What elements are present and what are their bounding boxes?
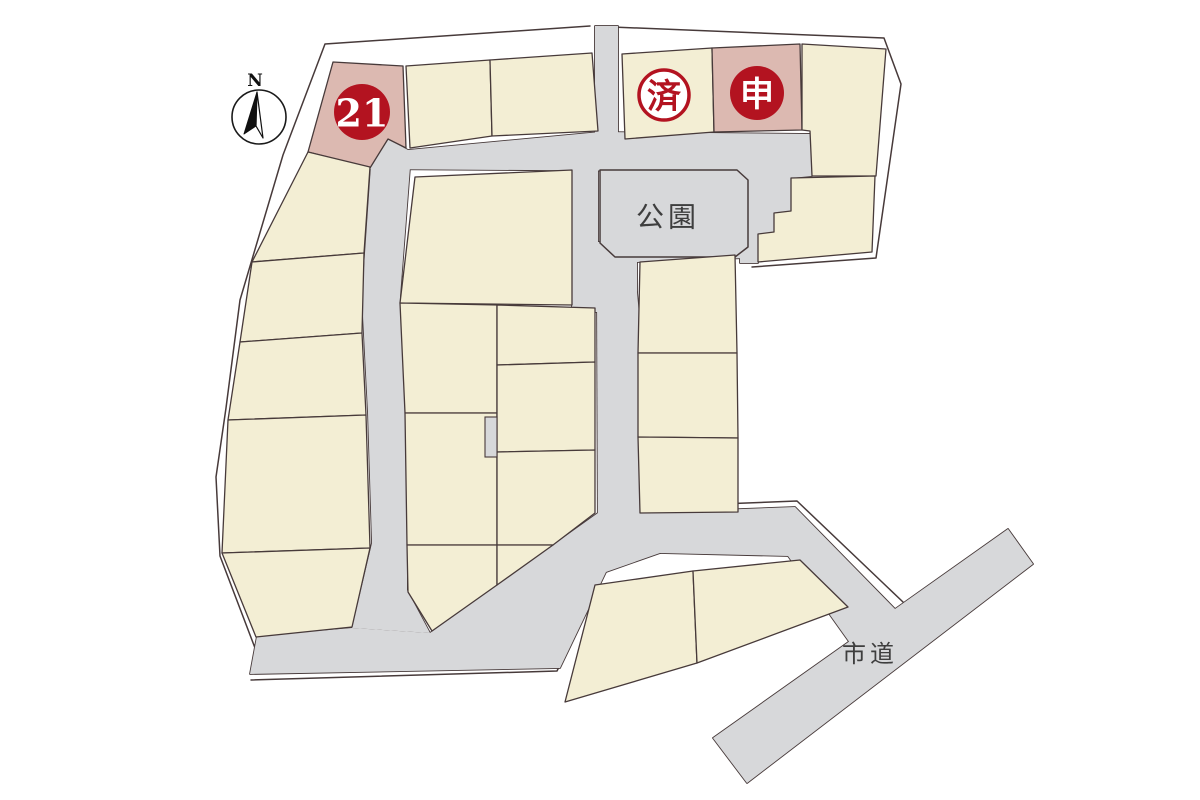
sold-marker[interactable]: 済 <box>639 70 689 120</box>
sold-text: 済 <box>647 77 682 117</box>
lot-parcel <box>802 44 886 176</box>
lot-parcel <box>252 152 370 262</box>
lot-parcel <box>497 362 595 452</box>
lot-parcel <box>228 333 366 420</box>
compass-needle-dark <box>244 92 257 134</box>
lot-parcel <box>406 60 492 148</box>
lot-number-text: 21 <box>336 91 389 136</box>
applied-text: 申 <box>740 75 774 115</box>
lot-parcel <box>222 415 370 553</box>
lot-parcel <box>240 253 364 342</box>
lot-parcel <box>490 53 598 136</box>
lot-parcel <box>497 305 595 365</box>
city-road-label: 市道 <box>842 640 898 668</box>
lot-parcel <box>400 303 497 413</box>
compass-needle-light <box>256 92 263 138</box>
lot-parcel <box>400 170 572 305</box>
lot-21-marker[interactable]: 21 <box>334 84 390 140</box>
lot-parcel <box>405 413 497 545</box>
compass: N <box>232 71 286 144</box>
park-label: 公園 <box>636 201 700 234</box>
subdivision-map-page: 21 済 申 公園 市道 N <box>0 0 1200 800</box>
driveway-sliver <box>485 417 497 457</box>
applied-marker[interactable]: 申 <box>730 66 784 120</box>
north-label: N <box>247 71 263 91</box>
lot-parcel <box>638 437 738 513</box>
lot-parcel <box>638 255 737 353</box>
site-map-canvas: 21 済 申 公園 市道 N <box>0 0 1200 800</box>
lot-parcel <box>222 548 370 637</box>
lot-parcel <box>638 353 738 438</box>
